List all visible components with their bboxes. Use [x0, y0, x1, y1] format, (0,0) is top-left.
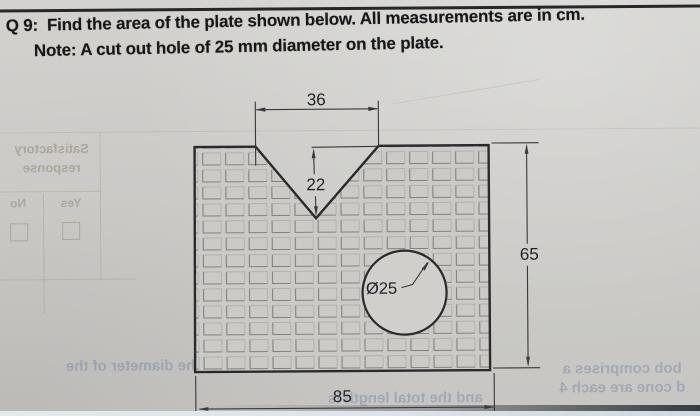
- photographed-exam-page: Q 9:Find the area of the plate shown bel…: [0, 0, 700, 416]
- plate-hatch-pattern: [194, 145, 491, 372]
- dim-label-height: 65: [520, 245, 539, 264]
- desk-edge-strip: [0, 411, 700, 416]
- paper-content: Q 9:Find the area of the plate shown bel…: [0, 0, 700, 416]
- dim-label-top-width: 36: [307, 90, 326, 109]
- dim-label-hole-diameter: Ø25: [366, 280, 397, 298]
- dim-label-width: 85: [333, 387, 352, 406]
- plate-technical-drawing: 36 22 65: [0, 0, 700, 416]
- dim-label-notch-depth: 22: [306, 175, 325, 194]
- dimension-notch-top-width: [255, 101, 378, 166]
